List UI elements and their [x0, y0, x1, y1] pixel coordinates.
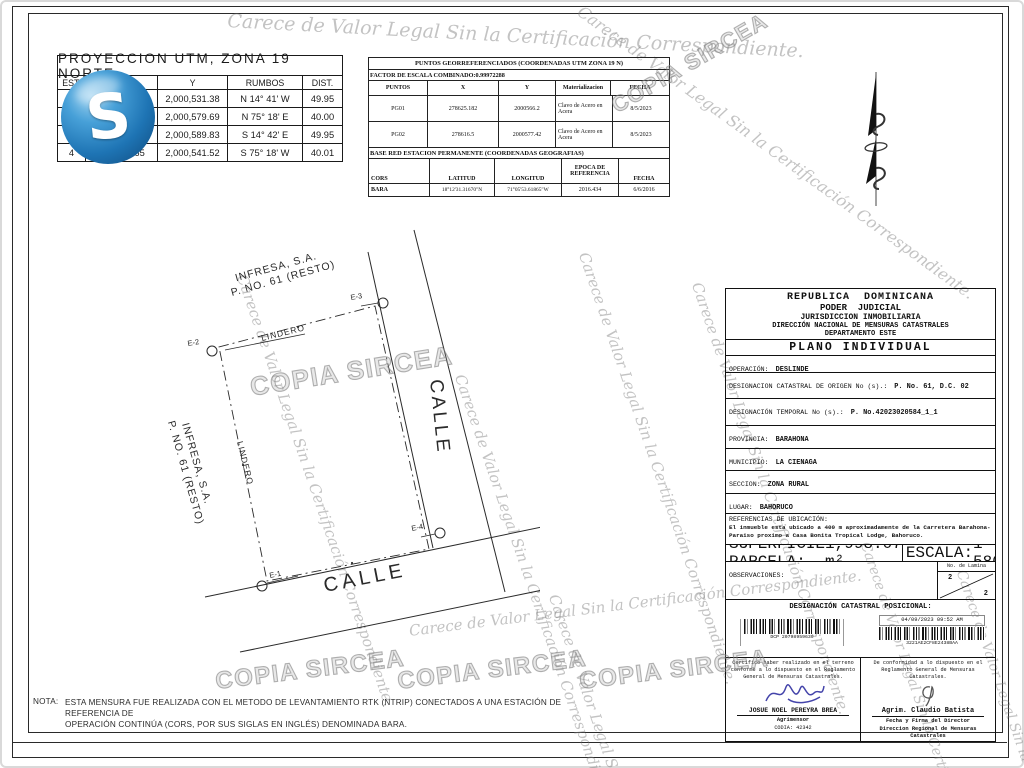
field-provincia: PROVINCIA:BARAHONA: [726, 426, 995, 449]
geo-col-header: Y: [499, 81, 556, 96]
station-point-e4: [435, 528, 445, 538]
field-observaciones: OBSERVACIONES: No. de Lamina 2 2: [726, 562, 995, 600]
field-superficie-escala: SUPERFICIE PARCELA: 1,998.07 m² ESCALA: …: [726, 545, 995, 562]
director-certification: De conformidad a lo dispuesto en el Regl…: [860, 658, 995, 741]
geo-col-header: EPOCA DE REFERENCIA: [562, 159, 619, 184]
field-label: LUGAR:: [729, 504, 753, 511]
table-cell: 2000566.2: [499, 96, 556, 122]
lamina-number-top: 2: [948, 574, 952, 582]
note-line: OPERACIÓN CONTINÚA (CORS, POR SUS SIGLAS…: [65, 719, 578, 730]
field-label: DESIGNACIÓN TEMPORAL No (s).:: [729, 409, 844, 416]
station-label: E-3: [350, 291, 363, 302]
lindero-label-left: LINDERO: [235, 440, 256, 486]
seal-letter: S: [83, 84, 134, 150]
lamina-box: No. de Lamina 2 2: [937, 562, 995, 599]
dcp-barcode-right: 04/09/2023 09:52 AM 3221AE2CF8E2438BAA: [879, 615, 985, 646]
table-cell: 2016.434: [562, 184, 619, 196]
street-label-vertical: CALLE: [425, 378, 454, 455]
geo-col-header: LONGITUD: [495, 159, 562, 184]
table-cell: Clavo de Acero en Acera: [556, 122, 613, 148]
field-label: SECCION:: [729, 481, 761, 488]
field-value: 1,998.07 m²: [825, 545, 902, 562]
director-signature: [864, 681, 992, 707]
field-value: P. No. 61, D.C. 02: [894, 383, 968, 391]
geo-scale-factor: FACTOR DE ESCALA COMBINADO:0.99972288: [369, 70, 670, 81]
field-value: P. No.42023020584_1_1: [851, 409, 938, 417]
barcode: [879, 627, 985, 640]
lamina-label: No. de Lamina: [938, 562, 995, 572]
title-block: REPUBLICA DOMINICANA PODER JUDICIAL JURI…: [725, 288, 996, 742]
station-leader: [421, 534, 435, 537]
field-label: PROVINCIA:: [729, 436, 769, 443]
geo-col-header: PUNTOS: [369, 81, 428, 96]
survey-note: NOTA: ESTA MENSURA FUE REALIZADA CON EL …: [33, 697, 578, 730]
barcode-caption: 3221AE2CF8E2438BAA: [879, 641, 985, 646]
field-value: LA CIENAGA: [776, 459, 817, 467]
table-cell: Clavo de Acero en Acera: [556, 96, 613, 122]
georeferenced-points-table: PUNTOS GEORREFERENCIADOS (COORDENADAS UT…: [368, 57, 670, 197]
field-label: OPERACIÓN:: [729, 366, 769, 373]
poder-judicial: PODER JUDICIAL: [726, 303, 995, 313]
plano-individual-title: PLANO INDIVIDUAL: [726, 340, 995, 356]
table-cell: 49.95: [303, 90, 342, 108]
jurisdiccion: JURISDICCION INMOBILIARIA: [726, 313, 995, 322]
field-municipio: MUNICIPIO:LA CIENAGA: [726, 449, 995, 471]
geo-table-title: PUNTOS GEORREFERENCIADOS (COORDENADAS UT…: [369, 58, 669, 70]
director-line2: Direccion Regional de Mensuras Catastral…: [864, 726, 992, 741]
surveyor-signature: [729, 681, 857, 707]
neighbor-parcel-label-top: INFRESA, S.A. P. NO. 61 (RESTO): [226, 246, 336, 299]
director-name: Agrim. Claudio Batista: [864, 707, 992, 715]
field-value: 1 : 580: [973, 545, 995, 562]
field-seccion: SECCION:ZONA RURAL: [726, 471, 995, 494]
table-cell: 278616.5: [428, 122, 499, 148]
table-cell: 2,000,579.69: [158, 108, 228, 126]
surveyor-role: Agrimensor: [729, 717, 857, 725]
table-cell: 8/5/2023: [613, 122, 669, 148]
signature-line: [737, 715, 849, 716]
field-label: MUNICIPIO:: [729, 459, 769, 466]
table-cell: S 75° 18' W: [228, 144, 303, 161]
table-cell: S 14° 42' E: [228, 126, 303, 144]
station-point-e2: [207, 346, 217, 356]
table-cell: 2000577.42: [499, 122, 556, 148]
station-label: E-4: [411, 522, 424, 533]
surveyor-codia: CODIA: 42342: [729, 725, 857, 732]
geo-col-header: CORS: [369, 159, 430, 184]
field-label: ESCALA:: [906, 545, 973, 562]
note-label: NOTA:: [33, 697, 65, 730]
bottom-frame-line: [12, 742, 1007, 743]
utm-col-header: DIST.: [303, 76, 342, 90]
field-value: BAHORUCO: [760, 504, 793, 512]
geo-col-header: Materializacion: [556, 81, 611, 96]
survey-plan-page: Carece de Valor Legal Sin la Certificaci…: [0, 0, 1024, 768]
table-cell: BARA: [369, 184, 430, 196]
field-temporal: DESIGNACIÓN TEMPORAL No (s).:P. No.42023…: [726, 399, 995, 426]
referencias-text: El inmueble esta ubicado a 400 m aproxim…: [729, 524, 992, 540]
lindero-label-top: LINDERO: [260, 322, 306, 343]
dcp-title: DESIGNACIÓN CATASTRAL POSICIONAL:: [726, 603, 995, 611]
geo-col-header: LATITUD: [430, 159, 495, 184]
table-cell: 278625.182: [428, 96, 499, 122]
neighbor-parcel-label-left: INFRESA, S.A. P. NO. 61 (RESTO): [165, 416, 219, 526]
field-value: ZONA RURAL: [768, 481, 809, 489]
director-line3: Departamento Este: [864, 741, 992, 742]
field-value: BARAHONA: [776, 436, 809, 444]
station-label: E-2: [187, 337, 200, 348]
station-leader: [361, 303, 378, 306]
table-cell: 18°12'31.31670"N: [430, 184, 495, 196]
certification-text: De conformidad a lo dispuesto en el Regl…: [864, 660, 992, 681]
country-title: REPUBLICA DOMINICANA: [726, 292, 995, 303]
barcode: [744, 619, 840, 634]
sircea-blue-seal: S: [61, 70, 155, 164]
table-cell: PG02: [369, 122, 428, 148]
road-line: [368, 252, 433, 548]
utm-col-header: Y: [158, 76, 228, 90]
field-origen: DESIGNACION CATASTRAL DE ORIGEN No (s).:…: [726, 373, 995, 399]
table-cell: 6/6/2016: [619, 184, 669, 196]
table-cell: N 14° 41' W: [228, 90, 303, 108]
street-label-bottom: CALLE: [322, 559, 408, 597]
field-label: DESIGNACION CATASTRAL DE ORIGEN No (s).:: [729, 383, 887, 390]
utm-col-header: RUMBOS: [228, 76, 303, 90]
table-cell: PG01: [369, 96, 428, 122]
geo-col-header: X: [428, 81, 499, 96]
table-cell: N 75° 18' E: [228, 108, 303, 126]
dcp-barcode-left: DCP 20798959639: [740, 619, 844, 646]
surveyor-name: JOSUE NOEL PEREYRA BREA: [729, 707, 857, 714]
table-cell: 2,000,541.52: [158, 144, 228, 161]
field-value: DESLINDE: [776, 366, 809, 373]
table-cell: 40.00: [303, 108, 342, 126]
title-block-header: REPUBLICA DOMINICANA PODER JUDICIAL JURI…: [726, 289, 995, 340]
geo-base-title: BASE RED ESTACION PERMANENTE (COORDENADA…: [369, 148, 670, 159]
departamento: DEPARTAMENTO ESTE: [726, 330, 995, 338]
direccion-nacional: DIRECCIÓN NACIONAL DE MENSURAS CATASTRAL…: [726, 322, 995, 330]
field-operacion: OPERACIÓN:DESLINDE: [726, 356, 995, 373]
barcode-caption: DCP 20798959639: [744, 635, 840, 640]
boundary-midpoint-mark: [351, 562, 353, 564]
parcel-plot-drawing: E-2 E-3 E-1 E-4 INFRESA, S.A. P. NO. 61 …: [120, 215, 540, 665]
field-label: SUPERFICIE PARCELA:: [729, 545, 825, 562]
north-arrow-icon: [852, 72, 896, 206]
note-line: ESTA MENSURA FUE REALIZADA CON EL METODO…: [65, 697, 578, 719]
table-cell: 2,000,589.83: [158, 126, 228, 144]
signature-line: [872, 716, 984, 717]
director-line1: Fecha y Firma del Director: [864, 718, 992, 726]
geo-col-header: FECHA: [619, 159, 669, 184]
field-referencias: REFERENCIAS DE UBICACIÓN: El inmueble es…: [726, 514, 995, 545]
field-label: REFERENCIAS DE UBICACIÓN:: [729, 516, 995, 523]
field-label: OBSERVACIONES:: [729, 572, 784, 579]
table-cell: 49.95: [303, 126, 342, 144]
dcp-timestamp: 04/09/2023 09:52 AM: [879, 615, 985, 626]
field-lugar: LUGAR:BAHORUCO: [726, 494, 995, 514]
lamina-number-bottom: 2: [984, 590, 988, 598]
table-cell: 71°05'53.61865"W: [495, 184, 562, 196]
table-cell: 2,000,531.38: [158, 90, 228, 108]
table-cell: 40.01: [303, 144, 342, 161]
